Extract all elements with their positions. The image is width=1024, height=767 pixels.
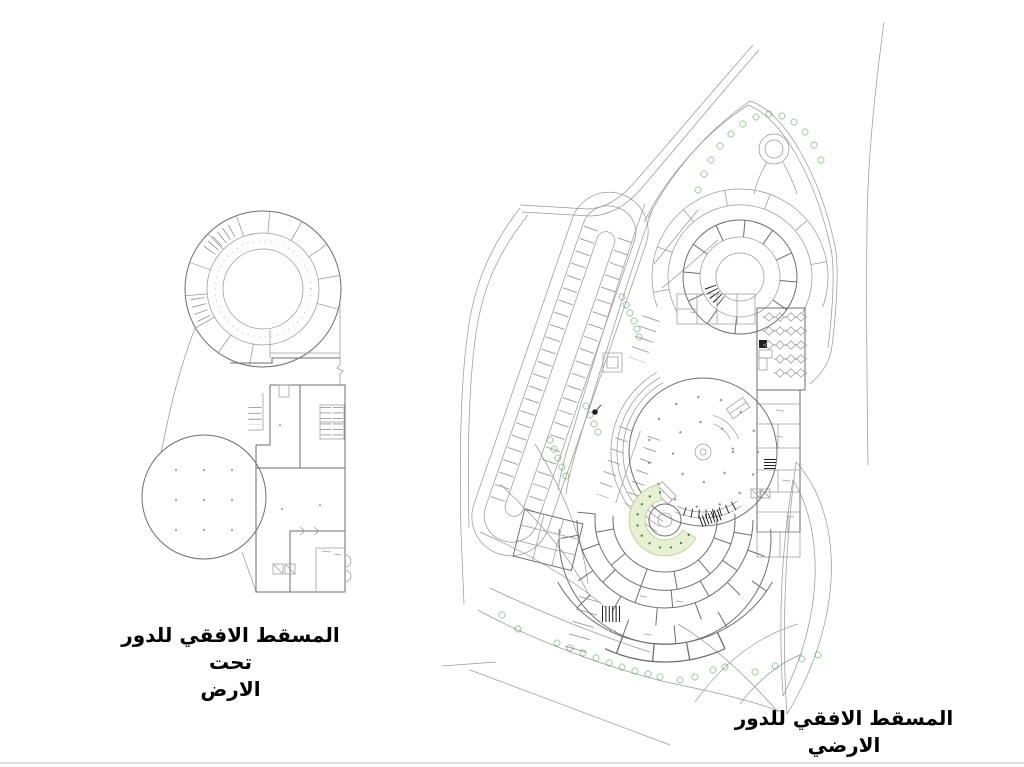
restaurant-terrace: [757, 308, 807, 390]
fan-wing: [513, 485, 772, 662]
terrace-tables: [763, 313, 807, 377]
parking-strip: [637, 318, 651, 360]
rooms-wing: [751, 390, 800, 557]
basement-plan-caption: المسقط الافقي للدور تحت الارض: [108, 622, 353, 703]
basement-plan-caption-line1: المسقط الافقي للدور تحت: [108, 622, 353, 676]
ground-floor-site-plan-drawing: [440, 12, 940, 732]
presentation-slide: المسقط الافقي للدور تحت الارض المسقط الا…: [0, 0, 1024, 767]
ground-plan-caption: المسقط الافقي للدور الارضي: [698, 705, 990, 759]
leaf-garden: [766, 462, 831, 714]
site-roads: [442, 22, 884, 745]
basement-plan-caption-line2: الارض: [108, 676, 353, 703]
ornamental-garden: [644, 101, 837, 384]
basement-neck-corridor: [230, 303, 343, 430]
basement-floor-plan-drawing: [130, 193, 370, 603]
basement-dome-hall: [142, 435, 266, 559]
basement-rotunda: [185, 211, 341, 367]
basement-block: [256, 385, 351, 592]
parking-area: [461, 182, 658, 567]
slide-bottom-edge: [0, 762, 1024, 764]
rotunda-building: [683, 220, 797, 334]
